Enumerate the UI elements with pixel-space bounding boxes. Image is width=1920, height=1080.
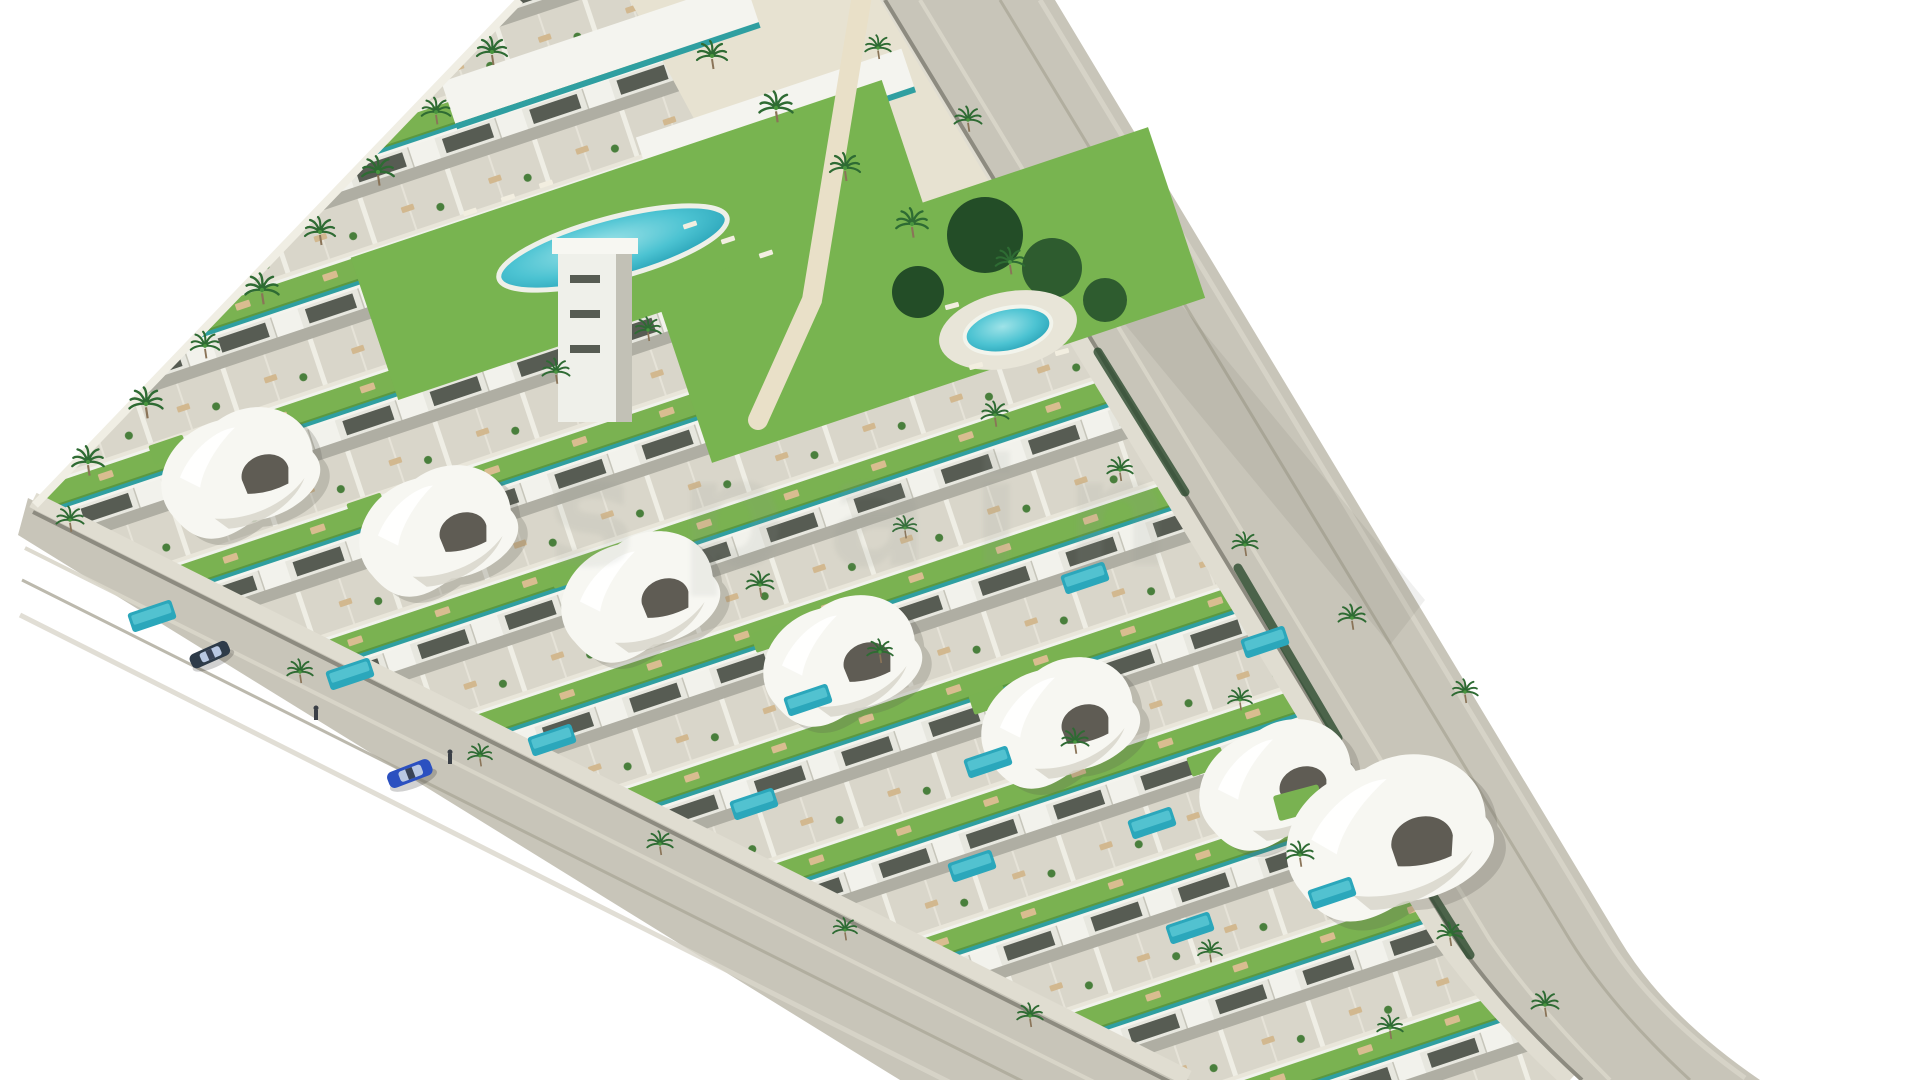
tower-cap <box>552 238 638 254</box>
shrub-cluster <box>1083 278 1127 322</box>
tower-window <box>570 310 600 318</box>
shrub-cluster <box>1022 238 1082 298</box>
watermark: spain <box>547 427 1213 601</box>
pedestrian <box>314 706 319 721</box>
shrub-cluster <box>892 266 944 318</box>
stair-tower <box>552 238 638 422</box>
tower-side <box>616 250 632 422</box>
pedestrian <box>448 750 453 765</box>
tower-window <box>570 275 600 283</box>
render-stage: spain <box>0 0 1920 1080</box>
site-render: spain <box>0 0 1920 1080</box>
tower-window <box>570 345 600 353</box>
